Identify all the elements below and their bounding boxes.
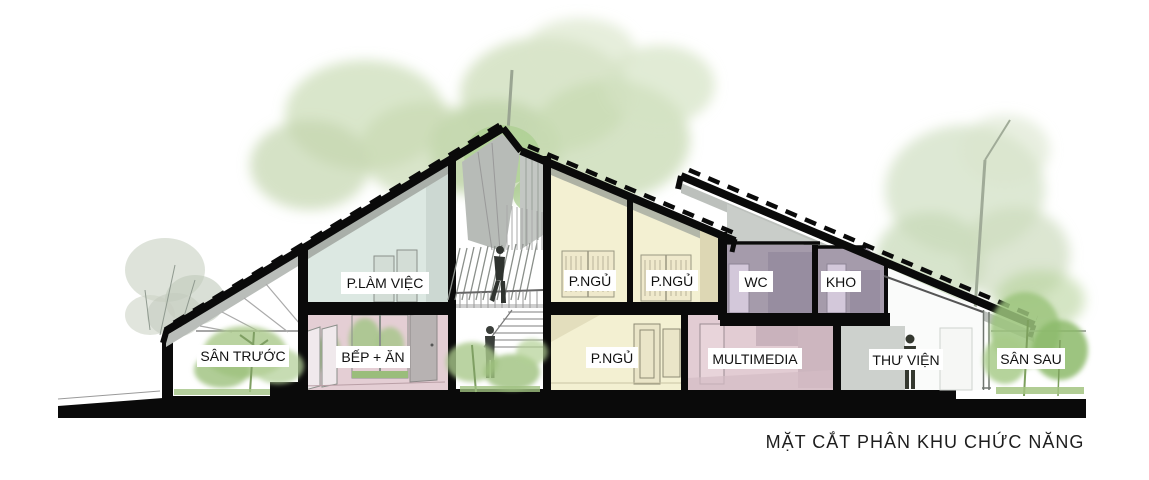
label-multimedia: MULTIMEDIA <box>708 348 802 369</box>
label-p-lam-viec-text: P.LÀM VIỆC <box>347 275 424 291</box>
label-multimedia-text: MULTIMEDIA <box>712 351 798 367</box>
label-p-ngu-upper-2: P.NGỦ <box>646 270 698 291</box>
porch-low-wall <box>162 337 173 407</box>
wc-kho-divider-wall <box>812 245 818 315</box>
label-p-ngu-upper-1-text: P.NGỦ <box>569 272 612 289</box>
bedroom-multimedia-wall <box>681 315 688 390</box>
label-p-ngu-upper-2-text: P.NGỦ <box>651 272 694 289</box>
label-bep-an-text: BẾP + ĂN <box>341 349 404 365</box>
label-thu-vien: THƯ VIỆN <box>869 349 943 370</box>
section-drawing: SÂN TRƯỚC BẾP + ĂN P.LÀM VIỆC P.NGỦ P.NG… <box>0 0 1149 480</box>
label-wc: WC <box>739 271 773 292</box>
label-thu-vien-text: THƯ VIỆN <box>872 352 939 368</box>
label-p-ngu-lower-text: P.NGỦ <box>591 349 634 366</box>
label-p-ngu-upper-1: P.NGỦ <box>564 270 616 291</box>
label-p-lam-viec: P.LÀM VIỆC <box>341 272 429 294</box>
label-san-truoc: SÂN TRƯỚC <box>197 345 289 367</box>
label-san-sau-text: SÂN SAU <box>1000 351 1061 367</box>
label-kho: KHO <box>821 271 861 292</box>
label-wc-text: WC <box>744 274 767 290</box>
bedroom-divider-wall <box>627 196 633 304</box>
label-kho-text: KHO <box>826 274 856 290</box>
section-title: MẶT CẮT PHÂN KHU CHỨC NĂNG <box>766 431 1085 452</box>
wall-bedroom-wc <box>718 232 727 320</box>
label-san-truoc-text: SÂN TRƯỚC <box>200 348 285 364</box>
label-san-sau: SÂN SAU <box>997 348 1065 369</box>
section-drawing-canvas: SÂN TRƯỚC BẾP + ĂN P.LÀM VIỆC P.NGỦ P.NG… <box>0 0 1149 480</box>
label-bep-an: BẾP + ĂN <box>336 346 410 368</box>
label-p-ngu-lower: P.NGỦ <box>586 347 638 368</box>
